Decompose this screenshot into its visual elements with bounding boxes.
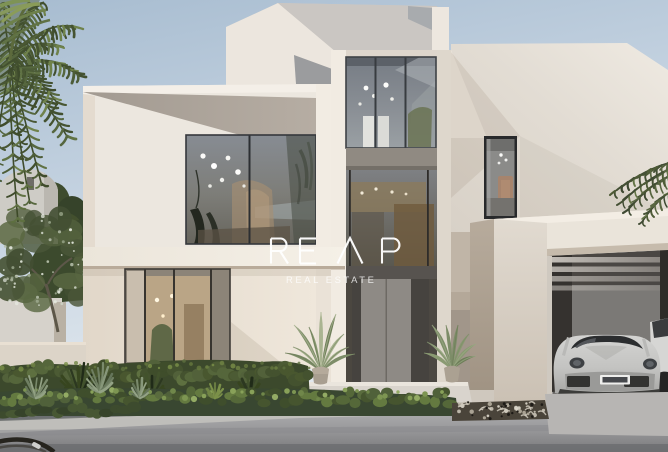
svg-text:REAL ESTATE: REAL ESTATE (286, 274, 376, 285)
